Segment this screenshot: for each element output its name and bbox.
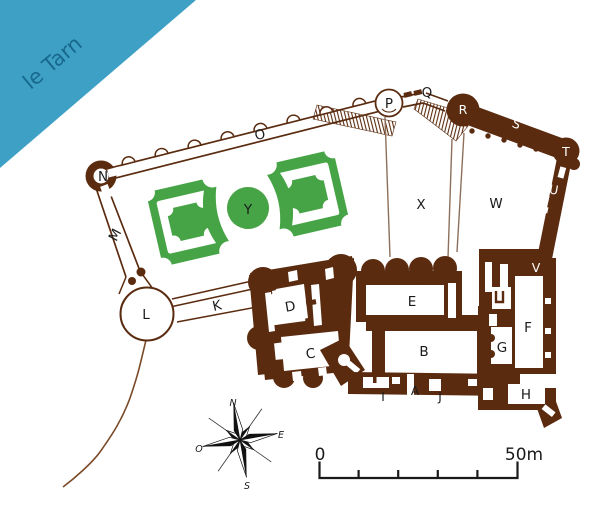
- label-B: B: [419, 344, 428, 360]
- castle-plan-svg: le TarnNMOPQRSTUVWXYKLDCEBFGHIAJNESO050m: [0, 0, 613, 512]
- room-e: [366, 285, 444, 315]
- label-Q: Q: [422, 85, 433, 101]
- garden-path: [63, 340, 146, 487]
- label-C: C: [305, 346, 316, 363]
- label-E: E: [408, 294, 417, 310]
- label-compass-n: N: [229, 398, 236, 409]
- wall-dot: [137, 268, 146, 277]
- label-R: R: [459, 102, 468, 117]
- parterre-right: [265, 149, 350, 239]
- label-P: P: [385, 96, 393, 112]
- palace-buildings: [247, 249, 562, 428]
- label-J: J: [437, 390, 442, 404]
- label-scale-50m: 50m: [505, 445, 543, 465]
- compass-rose: [196, 396, 284, 484]
- label-T: T: [561, 144, 570, 159]
- label-scale-0: 0: [315, 445, 326, 465]
- label-H: H: [521, 387, 531, 403]
- label-W: W: [489, 196, 502, 212]
- label-compass-o: O: [195, 444, 203, 455]
- wall-dot: [128, 277, 136, 285]
- label-G: G: [497, 340, 507, 356]
- label-Y: Y: [243, 202, 253, 218]
- label-X: X: [416, 197, 425, 213]
- label-compass-s: S: [244, 481, 250, 492]
- label-N: N: [98, 169, 108, 185]
- room-b: [385, 331, 477, 379]
- label-L: L: [142, 307, 150, 323]
- parterre-left: [146, 177, 231, 267]
- scale-bar: [320, 462, 518, 479]
- label-A: A: [411, 384, 420, 398]
- label-M: M: [106, 226, 126, 244]
- label-V: V: [532, 260, 541, 275]
- label-K: K: [211, 297, 224, 315]
- label-compass-e: E: [278, 430, 284, 441]
- label-I: I: [381, 390, 385, 404]
- label-F: F: [524, 320, 532, 336]
- castle-map-page: le TarnNMOPQRSTUVWXYKLDCEBFGHIAJNESO050m: [0, 0, 613, 512]
